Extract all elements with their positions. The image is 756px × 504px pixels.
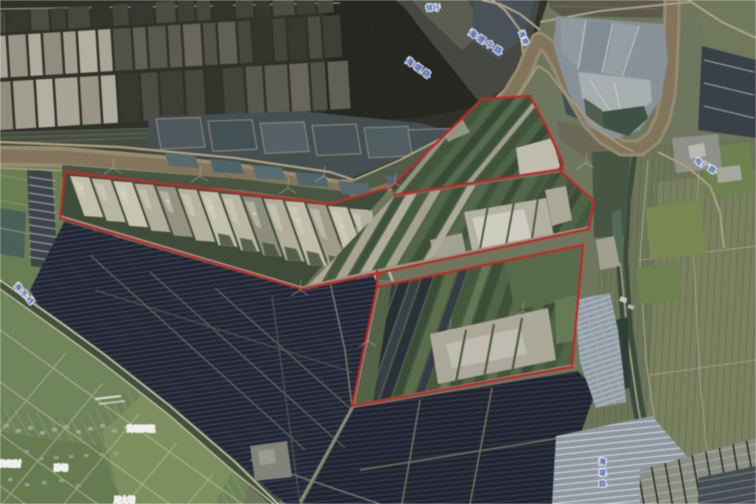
svg-text:孙场: 孙场 (54, 463, 68, 472)
svg-text:海堤四组: 海堤四组 (127, 424, 155, 433)
svg-text:海堤村: 海堤村 (0, 459, 21, 468)
svg-text:徐圩: 徐圩 (425, 3, 440, 12)
svg-text:周太场: 周太场 (114, 495, 135, 504)
svg-text:海堤路: 海堤路 (598, 457, 606, 491)
